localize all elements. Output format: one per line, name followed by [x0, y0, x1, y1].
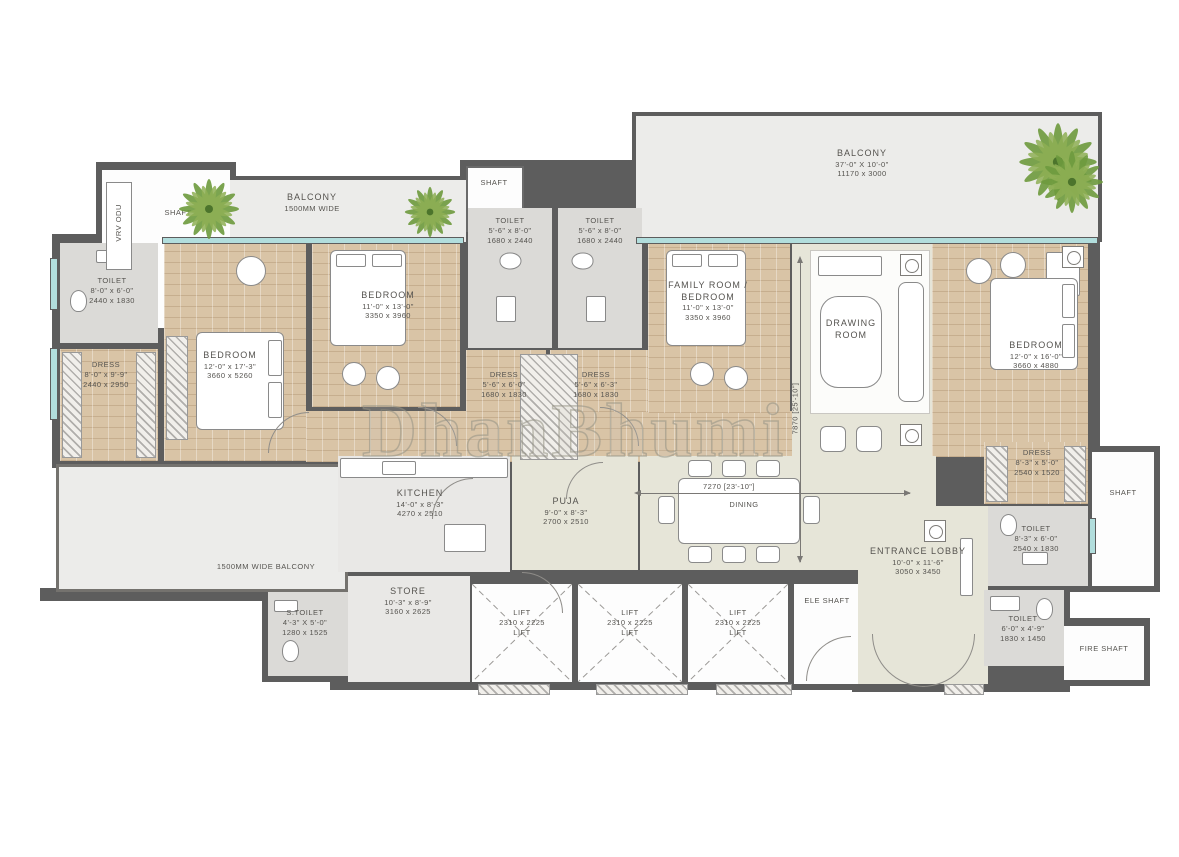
room-name: FIRE SHAFT — [1062, 644, 1146, 654]
kitchen-counter — [340, 458, 508, 478]
room-dim: 8'-0" x 9'-9" — [58, 370, 154, 380]
room-name: BEDROOM — [182, 350, 278, 362]
label-ele-shaft: ELE SHAFT — [802, 596, 852, 606]
label-toilet-top-left: TOILET 8'-0" x 6'-0" 2440 x 1830 — [64, 276, 160, 305]
room-name: VRV ODU — [114, 186, 124, 260]
room-dim: 4270 x 2510 — [372, 509, 468, 519]
hatch-below-lobby — [944, 684, 984, 695]
sofa-drawing — [898, 282, 924, 402]
room-dim: 2310 x 2225 — [692, 618, 784, 628]
room-dim: 5'-6" x 8'-0" — [466, 226, 554, 236]
room-dim: 2700 x 2510 — [518, 517, 614, 527]
label-dress-mid-1: DRESS 5'-6" x 6'-0" 1680 x 1830 — [458, 370, 550, 399]
label-drawing: DRAWING ROOM — [816, 318, 886, 341]
label-shaft2: SHAFT — [464, 178, 524, 188]
dim-label-vertical: 7870 [25'-10"] — [791, 366, 800, 452]
room-balcony-left — [56, 464, 348, 592]
room-name: 1500MM WIDE BALCONY — [196, 562, 336, 572]
label-balcony1: BALCONY 1500MM WIDE — [252, 192, 372, 213]
label-bedroom-4: BEDROOM 12'-0" x 16'-0" 3660 x 4880 — [988, 340, 1084, 371]
room-dim: 2440 x 1830 — [64, 296, 160, 306]
room-dim: 3660 x 4880 — [988, 361, 1084, 371]
speaker-icon — [1062, 246, 1084, 268]
window-left-1 — [50, 258, 58, 310]
label-fire-shaft: FIRE SHAFT — [1062, 644, 1146, 654]
room-name: LIFT — [692, 608, 784, 618]
room-name: LIFT — [692, 628, 784, 638]
basin-icon — [1022, 552, 1048, 565]
room-dim: 10'-3" x 8'-9" — [356, 598, 460, 608]
room-dim: 3050 x 3450 — [862, 567, 974, 577]
dim-line-vertical — [800, 258, 801, 562]
room-name: BALCONY — [802, 148, 922, 160]
pillow-bedroom1-b — [268, 382, 282, 418]
label-kitchen: KITCHEN 14'-0" x 8'-3" 4270 x 2510 — [372, 488, 468, 519]
chair-drawing-a — [820, 426, 846, 452]
room-name: TOILET — [990, 524, 1082, 534]
pillow-bedroom2-a — [336, 254, 366, 267]
dining-chair — [658, 496, 675, 524]
room-name: TOILET — [64, 276, 160, 286]
room-name: SHAFT — [464, 178, 524, 188]
plant-icon — [178, 178, 240, 240]
room-name: TOILET — [556, 216, 644, 226]
dining-chair — [722, 460, 746, 477]
room-name: ELE SHAFT — [802, 596, 852, 606]
chair-bedroom2-a — [342, 362, 366, 386]
room-dim: 8'-0" x 6'-0" — [64, 286, 160, 296]
label-balcony3: 1500MM WIDE BALCONY — [196, 562, 336, 572]
basin-icon — [586, 296, 606, 322]
label-vrv: VRV ODU — [114, 186, 124, 260]
room-dim: 11170 x 3000 — [802, 169, 922, 179]
speaker-icon — [924, 520, 946, 542]
dining-chair — [722, 546, 746, 563]
room-dim: 5'-6" x 6'-3" — [550, 380, 642, 390]
room-dim: 12'-0" x 16'-0" — [988, 352, 1084, 362]
label-bedroom-2: BEDROOM 11'-0" x 13'-0" 3350 x 3960 — [340, 290, 436, 321]
chair-bedroom4-a — [966, 258, 992, 284]
pillow-bedroom4-a — [1062, 284, 1075, 318]
room-name: DRESS — [458, 370, 550, 380]
label-s-toilet: S.TOILET 4'-3" X 5'-0" 1280 x 1525 — [260, 608, 350, 637]
label-lift-1: LIFT 2310 x 2225 LIFT — [476, 608, 568, 637]
label-dress-left: DRESS 8'-0" x 9'-9" 2440 x 2950 — [58, 360, 154, 389]
room-dim: 1680 x 1830 — [550, 390, 642, 400]
room-dim: 2540 x 1520 — [992, 468, 1082, 478]
wc-icon — [572, 253, 594, 270]
chair-family-b — [724, 366, 748, 390]
wc-icon — [500, 253, 522, 270]
dim-arrow-up — [797, 256, 803, 263]
label-dining: DINING — [696, 500, 792, 510]
dining-chair — [756, 546, 780, 563]
label-toilet-right-1: TOILET 8'-3" x 6'-0" 2540 x 1830 — [990, 524, 1082, 553]
room-name: S.TOILET — [260, 608, 350, 618]
window-right-lobby — [1089, 518, 1096, 554]
label-store: STORE 10'-3" x 8'-9" 3160 x 2625 — [356, 586, 460, 617]
wc-icon — [282, 640, 299, 662]
room-dim: 4'-3" X 5'-0" — [260, 618, 350, 628]
dim-arrow-right — [904, 490, 911, 496]
label-toilet-right-2: TOILET 6'-0" x 4'-9" 1830 x 1450 — [978, 614, 1068, 643]
table-drawing — [820, 296, 882, 388]
label-lift-3: LIFT 2310 x 2225 LIFT — [692, 608, 784, 637]
room-dim: 1680 x 1830 — [458, 390, 550, 400]
room-dim: 3660 x 5260 — [182, 371, 278, 381]
label-balcony2: BALCONY 37'-0" X 10'-0" 11170 x 3000 — [802, 148, 922, 179]
dim-arrow-down — [797, 556, 803, 563]
room-name: ENTRANCE LOBBY — [862, 546, 974, 558]
label-dress-mid-2: DRESS 5'-6" x 6'-3" 1680 x 1830 — [550, 370, 642, 399]
plant-icon — [404, 186, 456, 238]
room-name: LIFT — [476, 608, 568, 618]
room-dim: 1680 x 2440 — [556, 236, 644, 246]
pillow-family-a — [672, 254, 702, 267]
room-dim: 2310 x 2225 — [476, 618, 568, 628]
window-balcony2 — [636, 237, 1098, 244]
room-dim: 8'-3" x 5'-0" — [992, 458, 1082, 468]
dining-chair — [756, 460, 780, 477]
room-name: BEDROOM — [988, 340, 1084, 352]
room-name: DRESS — [550, 370, 642, 380]
room-name: FAMILY ROOM / BEDROOM — [652, 280, 764, 303]
room-name: SHAFT — [1094, 488, 1152, 498]
room-dim: 10'-0" x 11'-6" — [862, 558, 974, 568]
room-dim: 2540 x 1830 — [990, 544, 1082, 554]
label-toilet-mid-2: TOILET 5'-6" x 8'-0" 1680 x 2440 — [556, 216, 644, 245]
room-name: DRESS — [58, 360, 154, 370]
label-dress-right: DRESS 8'-3" x 5'-0" 2540 x 1520 — [992, 448, 1082, 477]
room-dim: 1680 x 2440 — [466, 236, 554, 246]
label-puja: PUJA 9'-0" x 8'-3" 2700 x 2510 — [518, 496, 614, 527]
room-dim: 3350 x 3960 — [652, 313, 764, 323]
kitchen-sink — [382, 461, 416, 475]
room-name: LIFT — [584, 628, 676, 638]
label-family: FAMILY ROOM / BEDROOM 11'-0" x 13'-0" 33… — [652, 280, 764, 323]
label-bedroom-1: BEDROOM 12'-0" x 17'-3" 3660 x 5260 — [182, 350, 278, 381]
room-dim: 12'-0" x 17'-3" — [182, 362, 278, 372]
room-dim: 2440 x 2950 — [58, 380, 154, 390]
room-name: LIFT — [584, 608, 676, 618]
room-dim: 9'-0" x 8'-3" — [518, 508, 614, 518]
basin-icon — [990, 596, 1020, 611]
dim-arrow-left — [634, 490, 641, 496]
dining-chair — [688, 546, 712, 563]
room-shaft-right — [1092, 452, 1154, 586]
room-name: DRESS — [992, 448, 1082, 458]
label-lift-2: LIFT 2310 x 2225 LIFT — [584, 608, 676, 637]
room-dim: 11'-0" x 13'-0" — [340, 302, 436, 312]
dim-line-horizontal — [636, 493, 910, 494]
room-name: DRAWING ROOM — [816, 318, 886, 341]
chair-family-a — [690, 362, 714, 386]
room-name: DINING — [696, 500, 792, 510]
speaker-icon — [900, 424, 922, 446]
window-left-2 — [50, 348, 58, 420]
room-name: TOILET — [466, 216, 554, 226]
floor-plan: 7870 [25'-10"] 7270 [23'-10"] BALCONY 15… — [0, 0, 1179, 857]
room-dim: 37'-0" X 10'-0" — [802, 160, 922, 170]
chair-bedroom2-b — [376, 366, 400, 390]
room-name: BEDROOM — [340, 290, 436, 302]
room-name: TOILET — [978, 614, 1068, 624]
room-dim: 5'-6" x 8'-0" — [556, 226, 644, 236]
room-name: PUJA — [518, 496, 614, 508]
room-dim: 14'-0" x 8'-3" — [372, 500, 468, 510]
room-dim: 8'-3" x 6'-0" — [990, 534, 1082, 544]
room-dim: 6'-0" x 4'-9" — [978, 624, 1068, 634]
room-dim: 3350 x 3960 — [340, 311, 436, 321]
room-name: STORE — [356, 586, 460, 598]
pillow-family-b — [708, 254, 738, 267]
dining-chair — [803, 496, 820, 524]
room-name: BALCONY — [252, 192, 372, 204]
hatch-below-lift2 — [596, 684, 688, 695]
label-shaft-right: SHAFT — [1094, 488, 1152, 498]
label-toilet-mid-1: TOILET 5'-6" x 8'-0" 1680 x 2440 — [466, 216, 554, 245]
dining-chair — [688, 460, 712, 477]
room-dim: 3160 x 2625 — [356, 607, 460, 617]
speaker-icon — [900, 254, 922, 276]
pillow-bedroom2-b — [372, 254, 402, 267]
basin-icon — [496, 296, 516, 322]
hatch-below-lift1 — [478, 684, 550, 695]
room-dim: 1830 x 1450 — [978, 634, 1068, 644]
room-name: LIFT — [476, 628, 568, 638]
room-dim: 5'-6" x 6'-0" — [458, 380, 550, 390]
room-dim: 1500MM WIDE — [252, 204, 372, 214]
chair-bedroom4-b — [1000, 252, 1026, 278]
room-dim: 1280 x 1525 — [260, 628, 350, 638]
label-lobby: ENTRANCE LOBBY 10'-0" x 11'-6" 3050 x 34… — [862, 546, 974, 577]
kitchen-hob — [444, 524, 486, 552]
room-name: KITCHEN — [372, 488, 468, 500]
room-dim: 11'-0" x 13'-0" — [652, 303, 764, 313]
plant-icon — [1040, 150, 1104, 214]
room-dim: 2310 x 2225 — [584, 618, 676, 628]
dim-label-horizontal: 7270 [23'-10"] — [700, 482, 758, 491]
chair-drawing-b — [856, 426, 882, 452]
bench-drawing — [818, 256, 882, 276]
chair-bedroom1 — [236, 256, 266, 286]
hatch-below-lift3 — [716, 684, 792, 695]
